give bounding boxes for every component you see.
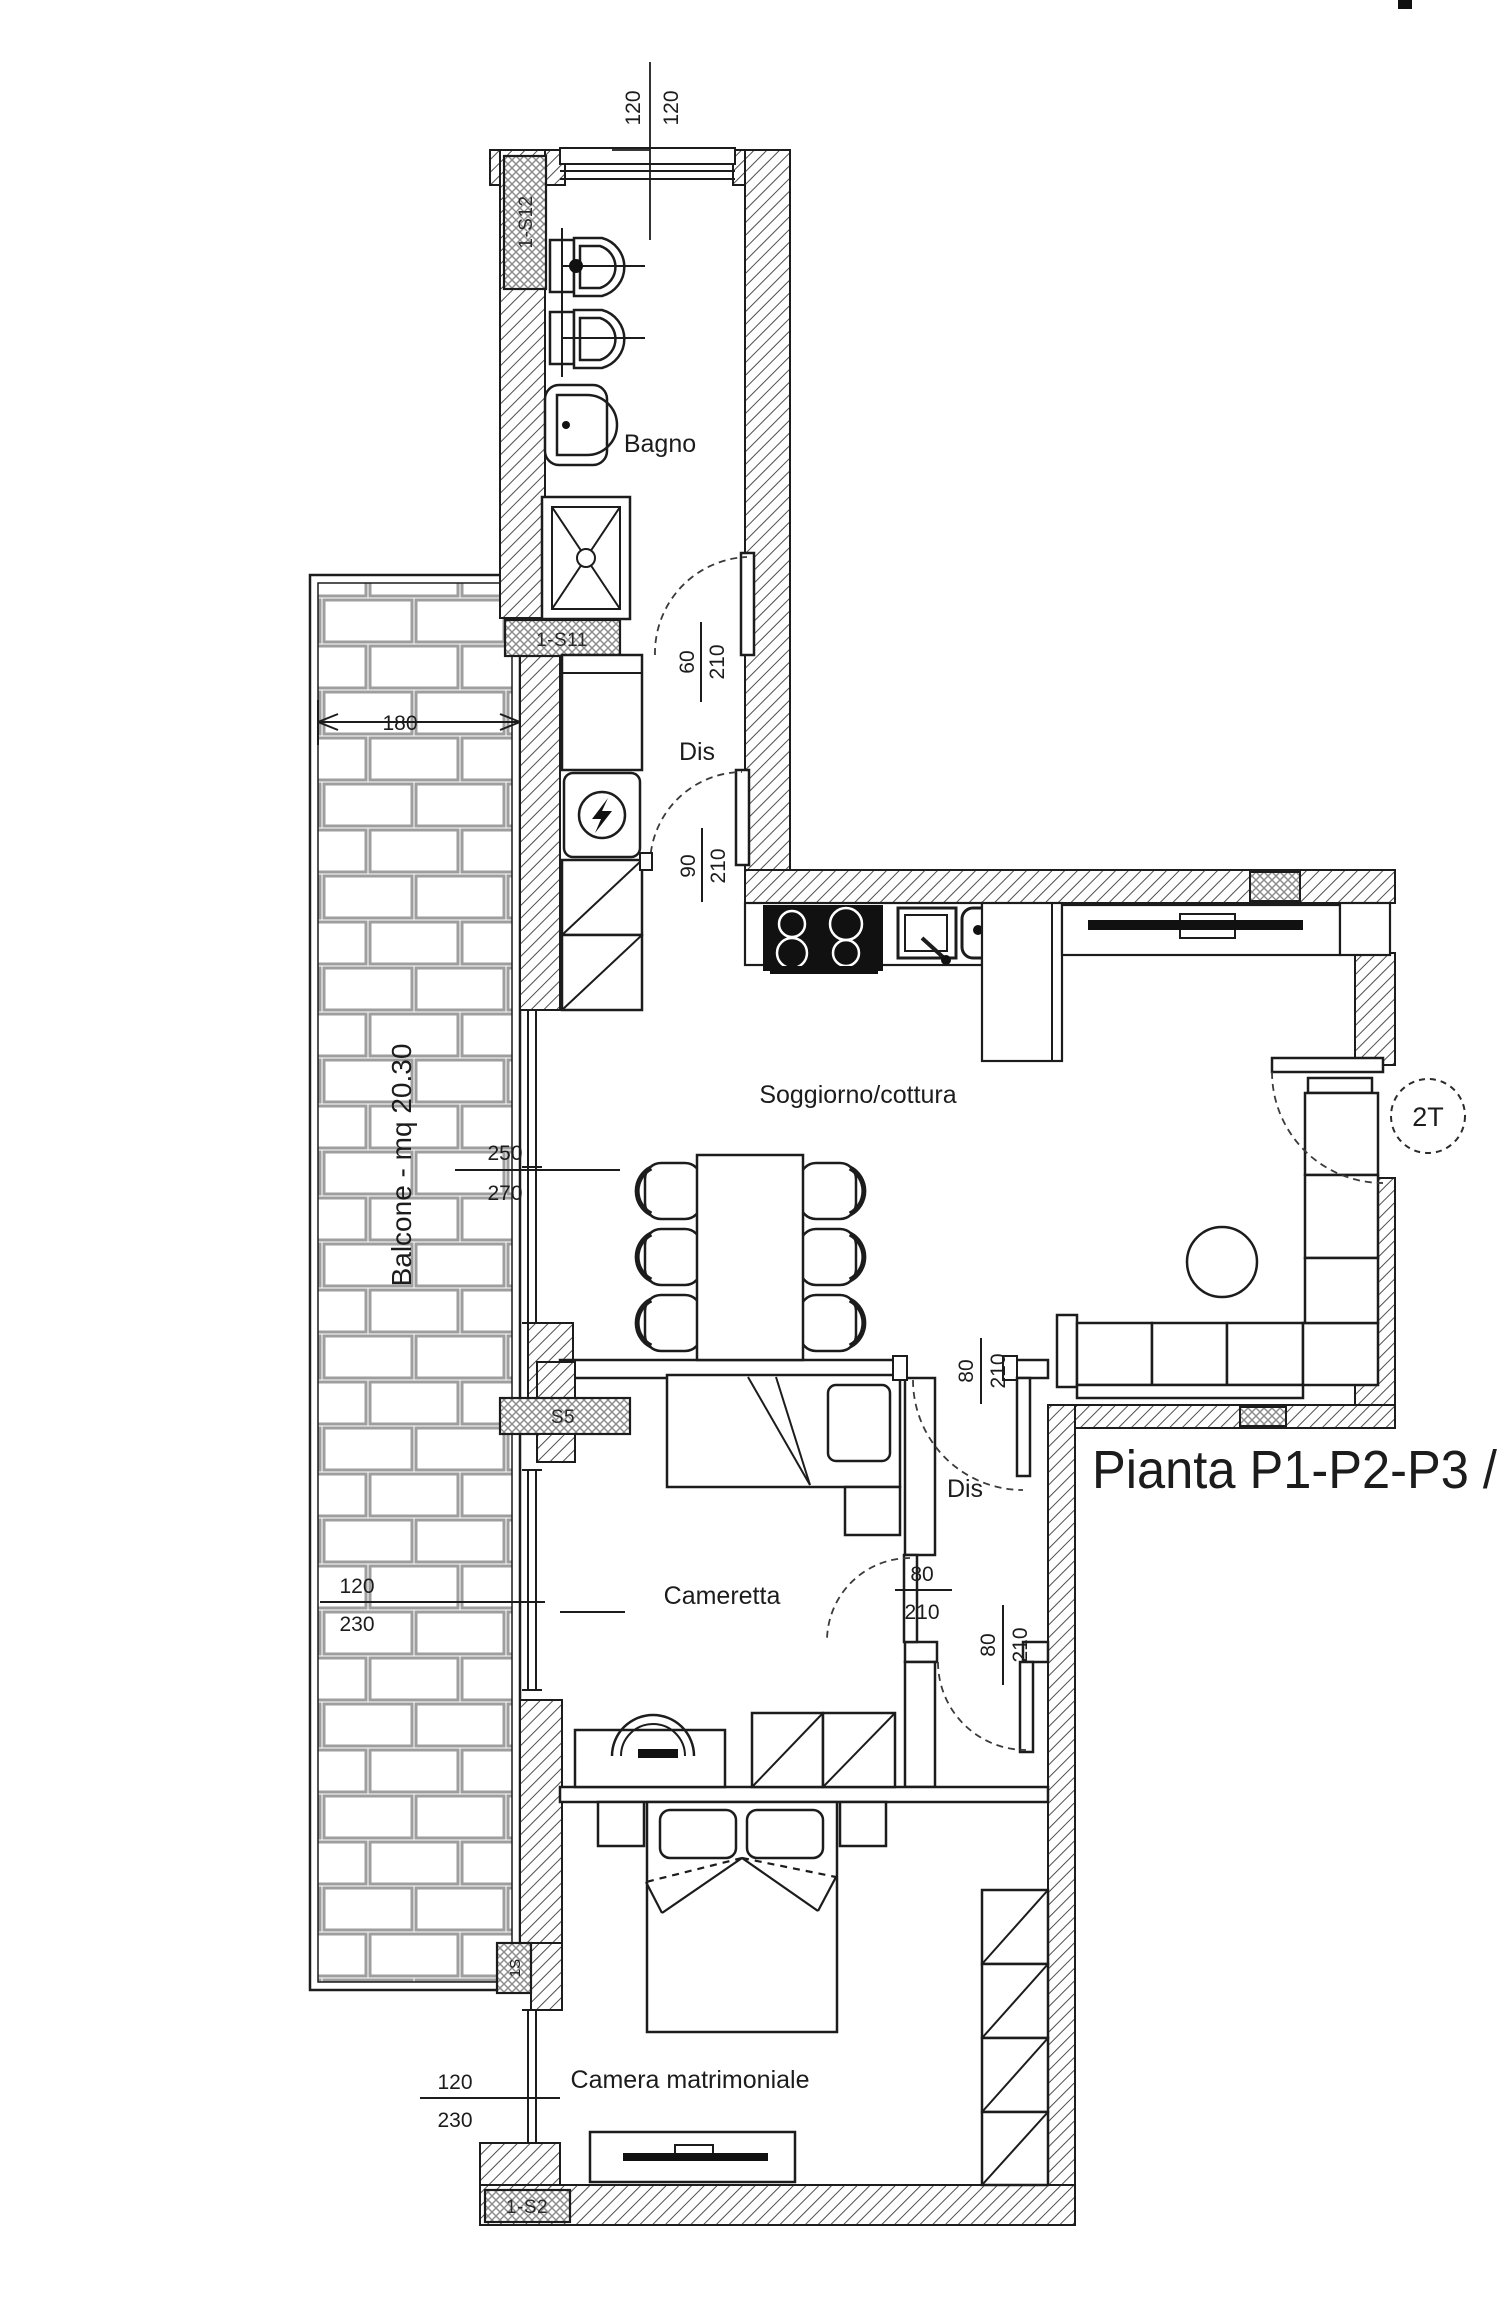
floor-plan-drawing: Balcone - mq 20.30 180 <box>0 0 1500 2305</box>
tv-icon-bedroom <box>623 2153 768 2161</box>
window-bagno <box>560 62 735 240</box>
wardrobe-camera <box>982 1890 1048 2185</box>
wall-left-mid <box>520 640 560 1010</box>
window-cameretta <box>522 1470 542 1690</box>
dim-top-window-left: 120 <box>622 90 645 125</box>
bidet-icon <box>550 228 645 305</box>
double-bed <box>646 1802 837 2032</box>
wall-tag-s5: S5 <box>551 1407 575 1428</box>
dim-camera-window-h: 230 <box>437 2109 472 2132</box>
partition-cameretta-lower <box>905 1662 935 1787</box>
dim-dis-camera-door-h: 210 <box>1009 1627 1032 1662</box>
dim-dis-door-h: 210 <box>707 848 730 883</box>
wall-right-lower <box>1048 1405 1075 2225</box>
stove-icon <box>763 905 883 974</box>
floor-plan-page: Balcone - mq 20.30 180 <box>0 0 1500 2305</box>
patch-s5-stub-top <box>537 1362 575 1398</box>
wall-bottom-corner <box>480 2143 560 2185</box>
patch-s5-stub-bottom <box>537 1434 575 1462</box>
camera-furniture <box>590 1802 1048 2185</box>
window-soggiorno <box>522 1010 542 1323</box>
dim-balcone-width-value: 180 <box>382 712 417 735</box>
corner-unit <box>1340 903 1390 955</box>
nightstand-right <box>840 1802 886 1846</box>
dim-dis-cameretta-door-h: 210 <box>904 1601 939 1624</box>
room-label-bagno: Bagno <box>624 430 696 458</box>
dim-dis-camera-door-w: 80 <box>977 1633 1000 1656</box>
stair-ref-label: 2T <box>1412 1102 1444 1132</box>
toilet-icon <box>550 300 645 377</box>
dim-top-window-right: 120 <box>660 90 683 125</box>
dim-bagno-door-w: 60 <box>676 650 699 673</box>
pillow-right <box>747 1810 823 1858</box>
wall-soggiorno-bottom <box>1048 1405 1395 1428</box>
patch-top-wall <box>1250 872 1300 901</box>
tv-sideboard <box>1062 903 1390 955</box>
shower-icon <box>542 497 630 619</box>
dim-sogg-dis-door-w: 80 <box>955 1359 978 1382</box>
tv-icon <box>1088 920 1303 930</box>
dining-chairs-right <box>800 1163 864 1351</box>
dining-table <box>697 1155 803 1360</box>
nightstand-left <box>598 1802 644 1846</box>
kitchen-tall-unit <box>982 903 1062 1061</box>
sofa-corner-seat <box>1303 1323 1378 1385</box>
plan-title: Pianta P1-P2-P3 / <box>1092 1440 1497 1500</box>
room-label-dis-mid: Dis <box>947 1475 983 1503</box>
dining-table-group <box>637 1155 864 1360</box>
single-bed <box>667 1375 900 1535</box>
dim-sogg-window-h: 270 <box>487 1182 522 1205</box>
room-label-dis-top: Dis <box>679 738 715 766</box>
dim-sogg-window-w: 250 <box>487 1142 522 1165</box>
dim-camera-window-w: 120 <box>437 2071 472 2094</box>
exterior-walls <box>480 150 1395 2225</box>
kitchen-sink-icon <box>898 908 994 965</box>
kitchen <box>745 903 1390 1061</box>
room-label-camera: Camera matrimoniale <box>571 2066 810 2094</box>
wall-bagno-right <box>745 150 790 870</box>
dim-cameretta-window-w: 120 <box>339 1575 374 1598</box>
dim-dis-door-w: 90 <box>677 854 700 877</box>
cameretta-furniture <box>560 1375 900 1787</box>
cropped-mark <box>1398 0 1412 9</box>
dim-bagno-door-h: 210 <box>706 644 729 679</box>
room-label-soggiorno: Soggiorno/cottura <box>759 1081 956 1109</box>
wall-tag-s11: 1-S11 <box>536 630 588 651</box>
dim-sogg-dis-door-h: 210 <box>987 1353 1010 1388</box>
sofa-armrest-top <box>1308 1078 1372 1093</box>
sofa-armrest-left <box>1057 1315 1077 1387</box>
dis-closets <box>562 655 642 1010</box>
door-cameretta-dis <box>827 1555 917 1642</box>
door-dis-camera <box>938 1662 1033 1752</box>
wall-right-upper <box>1355 953 1395 1065</box>
partition-cameretta-dis <box>905 1378 935 1555</box>
bagno-fixtures <box>542 228 645 619</box>
pillow-left <box>660 1810 736 1858</box>
dining-chairs-left <box>637 1163 701 1351</box>
door-bagno <box>655 553 754 655</box>
coffee-table-round <box>1187 1227 1257 1297</box>
electrical-panel-icon <box>564 773 640 857</box>
wall-tag-s12: 1-S12 <box>516 195 537 248</box>
patch-bottom-wall <box>1240 1407 1286 1426</box>
wall-tag-s2: 1-S2 <box>506 2197 548 2218</box>
room-label-cameretta: Cameretta <box>664 1582 781 1610</box>
desk-cameretta <box>575 1715 725 1787</box>
partition-stub-dis-left <box>905 1642 937 1662</box>
stair-reference: 2T <box>1391 1079 1465 1153</box>
wardrobe-cameretta <box>752 1713 895 1787</box>
window-camera <box>522 2010 542 2143</box>
balcone-area: Balcone - mq 20.30 180 <box>310 575 520 1990</box>
wall-tag-s1: 1S <box>507 1959 524 1977</box>
wall-left-cameretta <box>520 1700 562 1943</box>
sink-icon <box>545 385 617 465</box>
partition-cameretta-camera <box>560 1787 1048 1802</box>
dim-dis-cameretta-door-w: 80 <box>910 1563 933 1586</box>
dresser <box>590 2132 795 2182</box>
bedside-unit <box>845 1487 900 1535</box>
wall-tag-patches: 1-S12 1-S11 S5 1S 1-S2 <box>485 156 1300 2222</box>
room-label-balcone: Balcone - mq 20.30 <box>386 1044 417 1287</box>
wall-left-filler <box>531 1943 562 2010</box>
dim-cameretta-window-h: 230 <box>339 1613 374 1636</box>
sofa-group <box>1057 1078 1378 1398</box>
